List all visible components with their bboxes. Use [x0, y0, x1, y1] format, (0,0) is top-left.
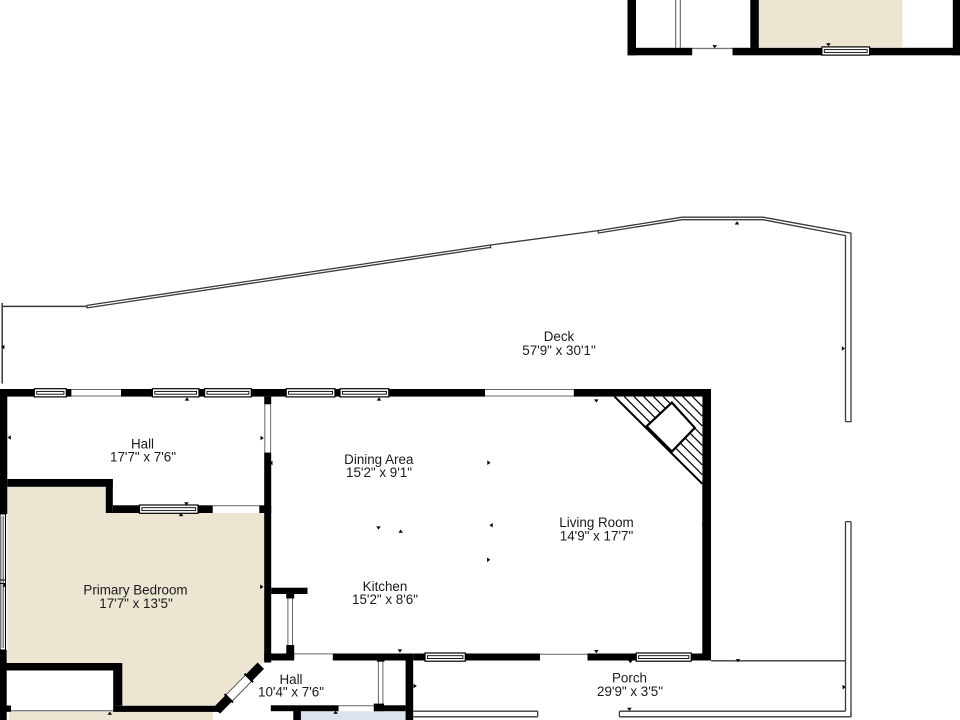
svg-text:15'2" x 9'1": 15'2" x 9'1": [346, 465, 412, 480]
svg-text:57'9" x 30'1": 57'9" x 30'1": [522, 343, 596, 358]
svg-text:29'9" x 3'5": 29'9" x 3'5": [597, 684, 663, 699]
svg-text:15'2" x 8'6": 15'2" x 8'6": [352, 592, 418, 607]
svg-text:Deck: Deck: [544, 329, 575, 344]
svg-text:14'9" x 17'7": 14'9" x 17'7": [560, 528, 634, 543]
svg-text:17'7" x 13'5": 17'7" x 13'5": [99, 596, 173, 611]
svg-text:10'4" x 7'6": 10'4" x 7'6": [258, 685, 324, 700]
svg-text:17'7" x 7'6": 17'7" x 7'6": [110, 450, 176, 465]
